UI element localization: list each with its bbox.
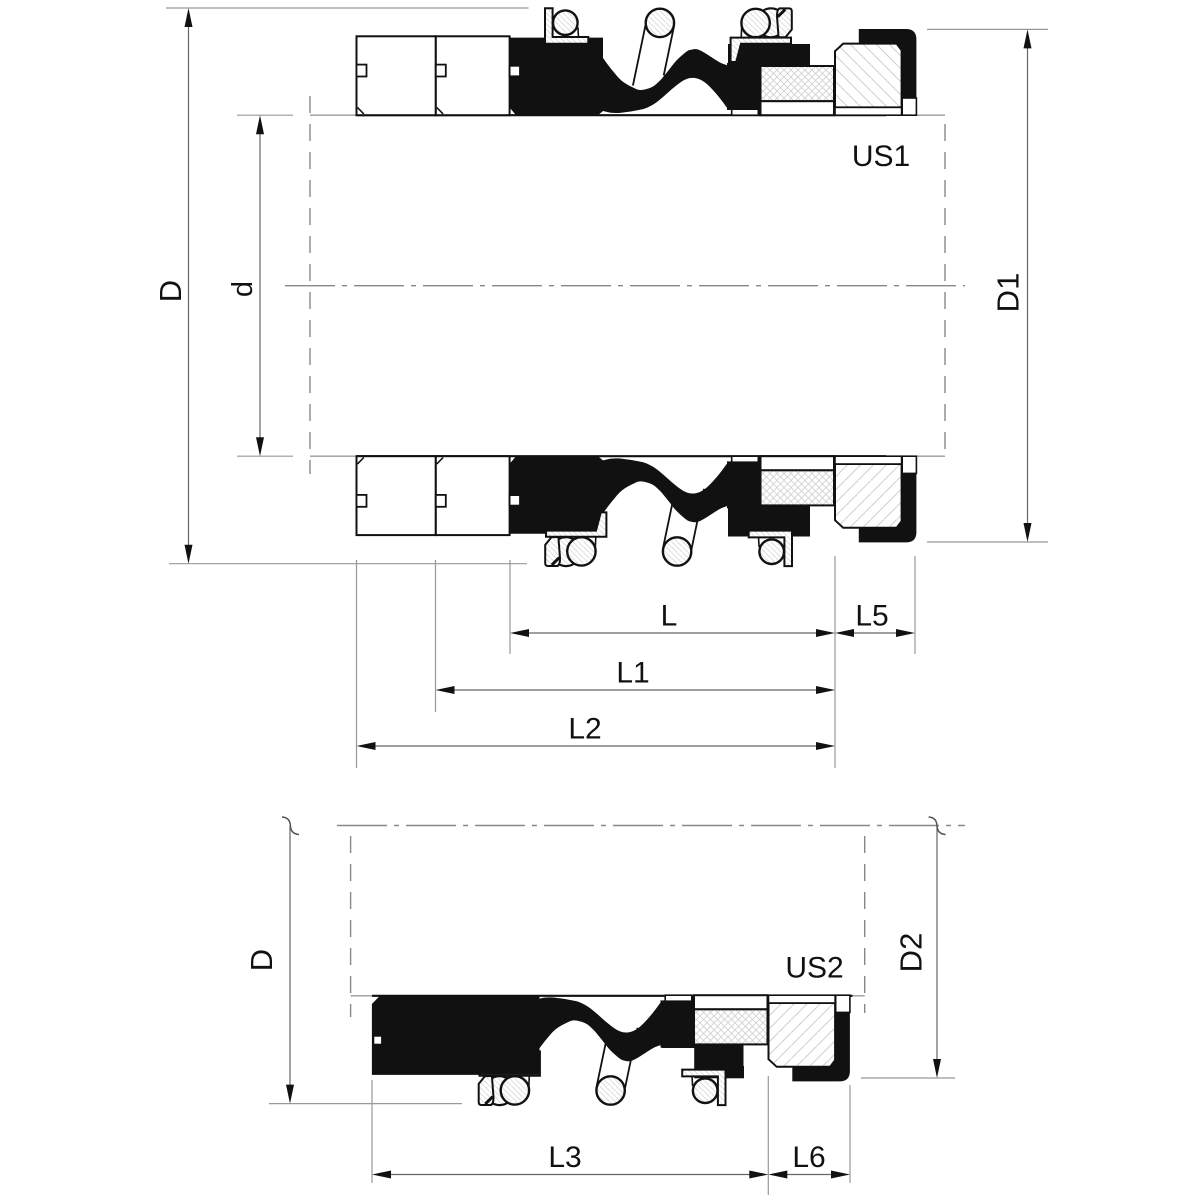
svg-text:L: L xyxy=(661,600,678,633)
svg-text:US1: US1 xyxy=(852,140,910,173)
svg-text:D2: D2 xyxy=(894,933,929,973)
svg-text:D1: D1 xyxy=(991,273,1026,313)
svg-text:L2: L2 xyxy=(568,713,601,746)
svg-text:L1: L1 xyxy=(616,657,649,690)
svg-text:D: D xyxy=(153,280,188,302)
svg-text:L5: L5 xyxy=(855,600,888,633)
svg-text:D: D xyxy=(244,949,279,971)
svg-text:d: d xyxy=(227,281,259,297)
svg-text:L3: L3 xyxy=(548,1141,581,1174)
svg-text:US2: US2 xyxy=(785,952,843,985)
svg-text:L6: L6 xyxy=(792,1141,825,1174)
